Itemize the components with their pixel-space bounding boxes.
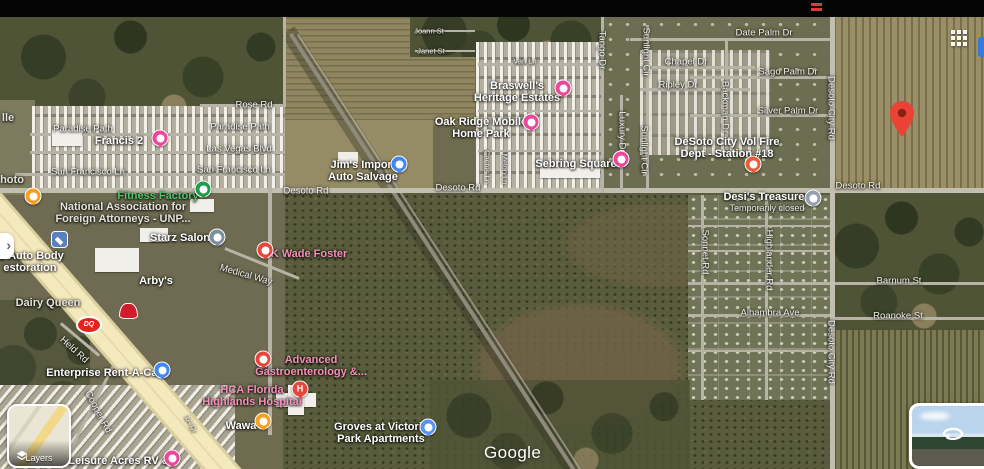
restaurant-pin[interactable] — [25, 188, 42, 205]
road-label: Rose Rd — [236, 100, 273, 111]
road-label: Cactus Ln — [483, 150, 492, 184]
road-label: Joann St — [414, 27, 444, 36]
road-label: Sago Palm Dr — [758, 67, 817, 78]
rotate-360-icon — [940, 426, 966, 442]
layers-label: Layers — [9, 453, 69, 463]
fitness-factory-pin[interactable] — [195, 181, 212, 198]
screenshot-stage: Rose RdParadise PathParadise PathLas Veg… — [0, 0, 984, 469]
map-annotations: Rose RdParadise PathParadise PathLas Veg… — [0, 17, 984, 469]
place-label[interactable]: Francis 2 — [95, 136, 143, 148]
road-label: Sonnet Rd — [700, 230, 711, 275]
road-label: San Francisco Ln — [197, 165, 271, 176]
road-label: Melon Ln — [501, 154, 510, 185]
road-label: Barnum St — [877, 276, 922, 287]
place-label[interactable]: Arby's — [139, 276, 173, 288]
destination-marker[interactable] — [890, 101, 914, 137]
francis-2-pin[interactable] — [152, 130, 169, 147]
place-label[interactable]: K Wade Foster — [271, 249, 348, 261]
jims-import-pin[interactable] — [391, 156, 408, 173]
enterprise-pin[interactable] — [154, 362, 171, 379]
hca-hospital-pin[interactable]: H — [292, 381, 309, 398]
place-label[interactable]: Desi's TreasuresTemporarily closed — [723, 192, 810, 214]
partial-blue-icon — [978, 37, 984, 57]
place-label[interactable]: Enterprise Rent-A-Car — [46, 368, 162, 380]
place-label[interactable]: Sebring Square — [535, 159, 616, 171]
road-label: Date Palm Dr — [735, 28, 792, 39]
street-view-thumbnail[interactable] — [909, 403, 984, 469]
desis-treasures-pin[interactable] — [805, 190, 822, 207]
place-label[interactable]: Groves at VictoriaPark Apartments — [334, 422, 428, 446]
road-label: Paradise Path — [53, 124, 113, 135]
road-label: Sunlight Cir — [639, 125, 650, 174]
place-label[interactable]: Starz Salon — [150, 233, 210, 245]
road-label: Backman Dr — [720, 81, 731, 133]
road-label: Luxury Dr — [617, 111, 628, 152]
road-label: Desoto Rd — [284, 186, 329, 197]
cloud-decor — [920, 412, 950, 420]
dairy-queen-logo-icon[interactable]: DQ — [76, 316, 102, 334]
road-label: Desoto Rd — [436, 183, 481, 194]
road-label: Desoto Rd — [836, 181, 881, 192]
chevron-right-icon: › — [6, 237, 11, 253]
leisure-acres-pin[interactable] — [164, 450, 181, 467]
top-bar — [0, 0, 984, 17]
place-label[interactable]: National Association forForeign Attorney… — [55, 202, 190, 226]
map-canvas[interactable]: Rose RdParadise PathParadise PathLas Veg… — [0, 17, 984, 469]
road-label: Van Ln — [513, 57, 536, 66]
place-label[interactable]: Jim's ImportAuto Salvage — [328, 160, 398, 184]
place-label[interactable]: lle — [2, 113, 14, 125]
road-label: Alhambra Ave — [741, 308, 800, 319]
road-label: San Francisco Ln — [51, 167, 125, 178]
road-label: Las Vegas Blvd — [206, 144, 272, 155]
braswells-heritage-pin[interactable] — [555, 80, 572, 97]
groves-apartments-pin[interactable] — [420, 419, 437, 436]
fire-station-pin[interactable] — [745, 156, 762, 173]
wawa-pin[interactable] — [255, 413, 272, 430]
road-label: Paradise Path — [210, 122, 270, 133]
road-label: Silver Palm Dr — [758, 106, 819, 117]
place-label[interactable]: Oak Ridge MobileHome Park — [435, 117, 527, 141]
layers-button[interactable]: Layers — [7, 404, 71, 468]
place-label[interactable]: Braswell'sHeritage Estates — [474, 81, 560, 105]
k-wade-foster-pin[interactable] — [257, 242, 274, 259]
google-logo: Google — [484, 443, 541, 463]
starz-salon-pin[interactable] — [209, 229, 226, 246]
arbys-hat-icon[interactable] — [119, 303, 138, 319]
road-label: Roanoke St — [873, 311, 923, 322]
place-label[interactable]: Leisure Acres RV & — [68, 456, 170, 468]
road-label: Janet St — [417, 47, 445, 56]
grid-icon[interactable] — [951, 30, 968, 47]
oak-ridge-pin[interactable] — [523, 114, 540, 131]
road-label: Sunlight Cir — [641, 27, 652, 76]
place-label[interactable]: AdvancedGastroenterology &... — [255, 355, 367, 379]
road-label: Chapel Dr — [665, 57, 708, 68]
side-panel-toggle[interactable]: › — [0, 233, 14, 259]
place-label[interactable]: Wawa — [226, 421, 257, 433]
road-label: Ripley Dr — [658, 80, 697, 91]
road-label: Tango Dr — [597, 31, 608, 70]
advanced-gastro-pin[interactable] — [255, 351, 272, 368]
road-label: Held Rd — [58, 334, 91, 365]
red-menu-icon — [811, 3, 822, 11]
place-label[interactable]: HCA FloridaHighlands Hospital — [202, 385, 302, 409]
road-label: 1A Dr — [183, 414, 200, 435]
graduation-cap-icon[interactable] — [51, 231, 68, 248]
place-label[interactable]: Dairy Queen — [16, 298, 81, 310]
sebring-square-pin[interactable] — [613, 151, 630, 168]
road-label: Desoto City Rd — [826, 76, 837, 140]
road-label: Desoto City Rd — [826, 320, 837, 384]
road-label: Medical Way — [219, 262, 274, 287]
place-label[interactable]: hoto — [0, 175, 24, 187]
place-label[interactable]: DeSoto City Vol FireDept - Station #18 — [675, 137, 780, 161]
road-label: Cooper Rd — [82, 389, 113, 435]
road-label: Highlander Rd — [764, 230, 775, 291]
